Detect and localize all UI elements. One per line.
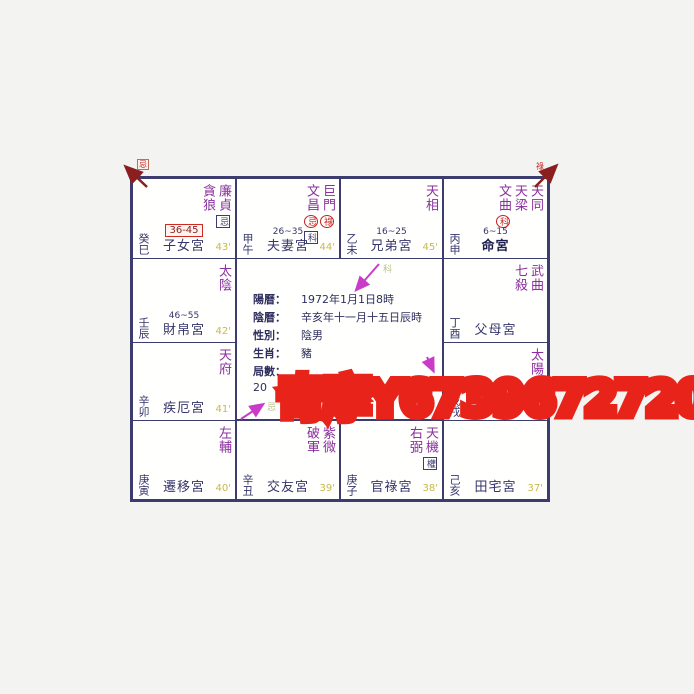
star-list: 天相 <box>407 184 438 212</box>
star-name: 文昌 <box>304 184 319 212</box>
ziwei-chart-grid: 廉貞忌 貪狼 36-45 癸巳 子女宮 43' 巨門祿 文昌忌科 26~35 甲… <box>130 176 550 502</box>
info-label: 陰曆： <box>253 309 301 325</box>
star-name: 天梁 <box>512 184 527 212</box>
palace-cell-life[interactable]: 天同 天梁 文曲科 6~15 丙申 命宮 <box>443 178 548 259</box>
star-name: 天府 <box>216 348 231 376</box>
info-value: 辛亥年十一月十五日辰時 <box>301 309 422 325</box>
star-name: 太陰 <box>216 264 231 292</box>
palace-cell-siblings[interactable]: 天相 16~25 乙未 兄弟宮 45' <box>340 178 443 259</box>
palace-cell-travel[interactable]: 左輔 庚寅 遷移宮 40' <box>132 420 236 500</box>
palace-name: 命宮 <box>444 235 547 254</box>
watermark-text: 奇摩Y6739672720 <box>278 360 694 429</box>
palace-cell-children[interactable]: 廉貞忌 貪狼 36-45 癸巳 子女宮 43' <box>132 178 236 259</box>
info-label: 陽曆： <box>253 291 301 307</box>
star-list: 武曲 七殺 <box>481 264 543 292</box>
info-value: 豬 <box>301 345 312 361</box>
star-list: 廉貞忌 貪狼 <box>154 184 231 228</box>
star-list: 天同 天梁 文曲科 <box>435 184 543 228</box>
star-name: 武曲 <box>528 264 543 292</box>
age-number: 39' <box>320 483 335 494</box>
star-name: 天機 <box>423 426 438 454</box>
age-number: 42' <box>216 326 231 337</box>
age-number: 44' <box>320 242 335 253</box>
age-number: 45' <box>423 242 438 253</box>
arrow-mark-siblings: 科 <box>383 266 392 275</box>
star-name: 文曲 <box>496 184 511 212</box>
palace-cell-property[interactable]: 己亥 田宅宮 37' <box>443 420 548 500</box>
arrow-mark-top-left: 忌 <box>137 159 149 170</box>
info-label: 生肖： <box>253 345 301 361</box>
arrow-mark-health: 忌 <box>267 404 276 413</box>
star-name: 貪狼 <box>200 184 215 212</box>
info-partial-line: 20 <box>253 381 267 394</box>
info-value: 陰男 <box>301 327 323 343</box>
age-number: 41' <box>216 404 231 415</box>
star-name: 天同 <box>528 184 543 212</box>
star-name: 破軍 <box>304 426 319 454</box>
star-list: 左輔 <box>200 426 231 454</box>
star-name: 七殺 <box>512 264 527 292</box>
star-list: 天機權 右弼 <box>361 426 438 470</box>
palace-cell-parents[interactable]: 武曲 七殺 丁酉 父母宮 <box>443 258 548 343</box>
info-label: 性別： <box>253 327 301 343</box>
age-number: 38' <box>423 483 438 494</box>
palace-cell-wealth[interactable]: 太陰 46~55 壬辰 財帛宮 42' <box>132 258 236 343</box>
star-name: 右弼 <box>407 426 422 454</box>
star-list: 太陰 <box>200 264 231 292</box>
arrow-mark-top-right: 祿 <box>536 162 544 171</box>
palace-cell-health[interactable]: 天府 辛卯 疾厄宮 41' <box>132 342 236 421</box>
star-name: 左輔 <box>216 426 231 454</box>
star-name: 巨門 <box>320 184 335 212</box>
star-name: 紫微 <box>320 426 335 454</box>
star-list: 紫微 破軍 <box>273 426 335 454</box>
transform-mark: 權 <box>423 457 437 470</box>
palace-name: 父母宮 <box>444 319 547 338</box>
info-value: 1972年1月1日8時 <box>301 291 394 307</box>
star-list: 天府 <box>200 348 231 376</box>
age-number: 37' <box>528 483 543 494</box>
palace-cell-spouse[interactable]: 巨門祿 文昌忌科 26~35 甲午 夫妻宮 44' <box>236 178 340 259</box>
palace-cell-friends[interactable]: 紫微 破軍 辛丑 交友宮 39' <box>236 420 340 500</box>
palace-cell-career[interactable]: 天機權 右弼 庚子 官祿宮 38' <box>340 420 443 500</box>
age-number: 40' <box>216 483 231 494</box>
